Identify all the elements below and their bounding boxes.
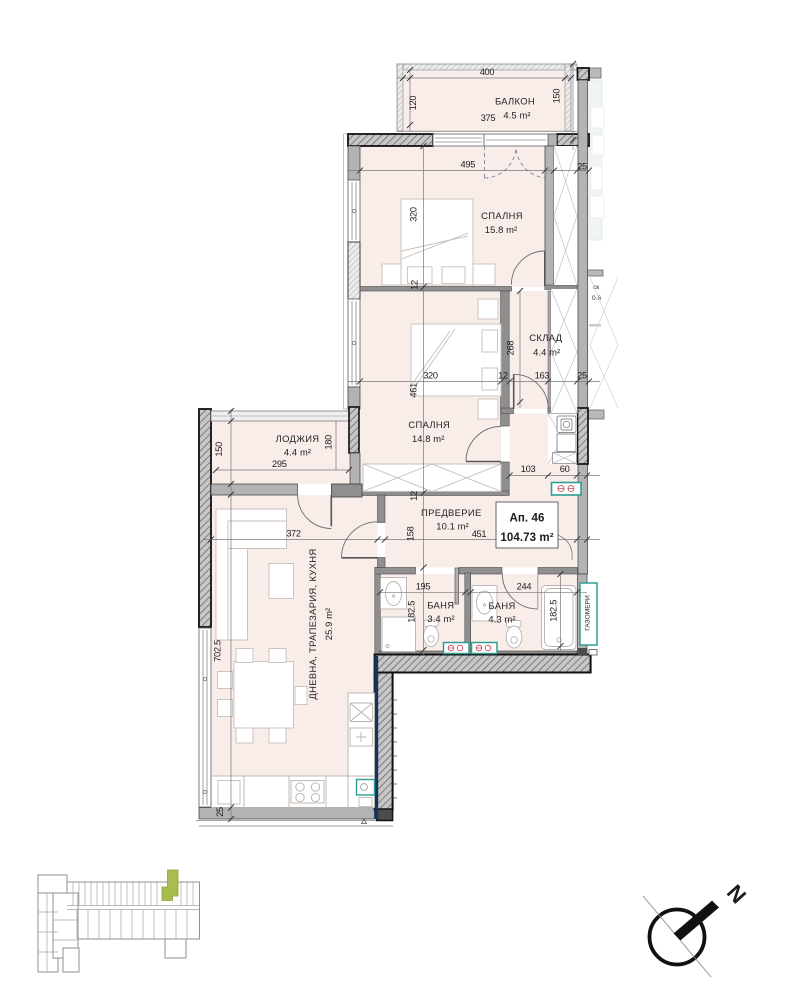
svg-text:12: 12 [409, 491, 419, 501]
svg-text:12: 12 [410, 280, 420, 290]
svg-text:104.73 m²: 104.73 m² [500, 532, 553, 544]
svg-text:103: 103 [521, 464, 536, 474]
svg-text:25: 25 [577, 162, 587, 172]
svg-text:3.4 m²: 3.4 m² [427, 613, 454, 624]
svg-text:СКЛАД: СКЛАД [529, 332, 562, 343]
svg-text:БАЛКОН: БАЛКОН [495, 96, 535, 107]
svg-text:150: 150 [214, 442, 224, 457]
svg-text:268: 268 [506, 341, 516, 356]
svg-text:25.9 m²: 25.9 m² [323, 608, 334, 640]
svg-text:60: 60 [560, 464, 570, 474]
svg-text:120: 120 [408, 96, 418, 111]
svg-text:400: 400 [480, 67, 495, 77]
svg-text:150: 150 [552, 89, 562, 104]
svg-text:БАНЯ: БАНЯ [489, 600, 516, 611]
svg-text:320: 320 [423, 370, 438, 380]
svg-text:25: 25 [577, 370, 587, 380]
svg-text:СПАЛНЯ: СПАЛНЯ [481, 210, 523, 221]
svg-text:ЛОДЖИЯ: ЛОДЖИЯ [276, 433, 320, 444]
svg-text:ГАЗОМЕРИ: ГАЗОМЕРИ [585, 595, 592, 631]
svg-text:4.3 m²: 4.3 m² [488, 614, 515, 625]
svg-text:4.4 m²: 4.4 m² [284, 447, 311, 458]
svg-text:244: 244 [517, 581, 532, 591]
svg-text:БАНЯ: БАНЯ [427, 600, 454, 611]
svg-text:495: 495 [460, 160, 475, 170]
svg-text:163: 163 [535, 370, 550, 380]
svg-text:461: 461 [408, 383, 418, 398]
svg-text:СПАЛНЯ: СПАЛНЯ [408, 419, 450, 430]
svg-text:320: 320 [409, 207, 419, 222]
svg-text:451: 451 [472, 529, 487, 539]
svg-text:Ап. 46: Ап. 46 [509, 513, 544, 525]
svg-text:182.5: 182.5 [406, 601, 416, 623]
svg-text:702.5: 702.5 [212, 640, 222, 662]
svg-text:12: 12 [498, 370, 508, 380]
svg-text:ПРЕДВЕРИЕ: ПРЕДВЕРИЕ [421, 507, 482, 518]
svg-text:4.5 m²: 4.5 m² [503, 109, 530, 120]
svg-text:15.8 m²: 15.8 m² [485, 224, 517, 235]
svg-text:14.8 m²: 14.8 m² [412, 433, 444, 444]
svg-text:25: 25 [215, 807, 225, 817]
svg-text:158: 158 [405, 526, 415, 541]
svg-text:ДНЕВНА, ТРАПЕЗАРИЯ, КУХНЯ: ДНЕВНА, ТРАПЕЗАРИЯ, КУХНЯ [307, 548, 318, 699]
svg-text:180: 180 [324, 435, 334, 450]
svg-text:375: 375 [481, 113, 496, 123]
svg-text:4.4 m²: 4.4 m² [533, 347, 560, 358]
svg-text:372: 372 [286, 529, 301, 539]
svg-text:10.1 m²: 10.1 m² [436, 521, 468, 532]
svg-text:195: 195 [416, 581, 431, 591]
svg-text:295: 295 [272, 459, 287, 469]
svg-text:182.5: 182.5 [549, 600, 559, 622]
